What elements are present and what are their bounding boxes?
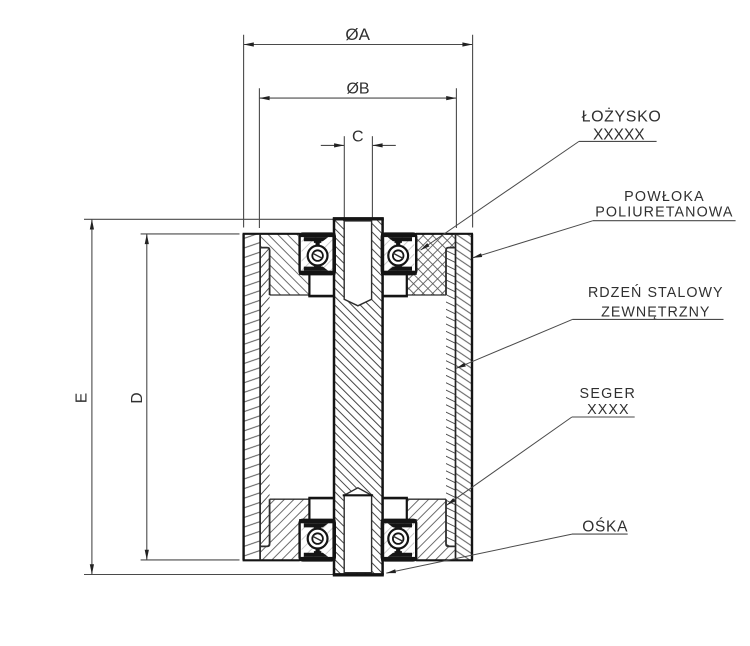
- svg-text:POLIURETANOWA: POLIURETANOWA: [595, 205, 733, 221]
- svg-text:XXXX: XXXX: [587, 402, 630, 418]
- svg-text:ØA: ØA: [345, 25, 370, 44]
- svg-text:SEGER: SEGER: [580, 386, 637, 402]
- svg-text:ØB: ØB: [346, 81, 369, 98]
- svg-text:ŁOŻYSKO: ŁOŻYSKO: [582, 106, 662, 125]
- svg-text:XXXXX: XXXXX: [593, 126, 645, 143]
- svg-text:D: D: [129, 392, 146, 403]
- svg-text:C: C: [352, 129, 364, 146]
- svg-text:ZEWNĘTRZNY: ZEWNĘTRZNY: [601, 305, 710, 321]
- svg-text:OŚKA: OŚKA: [582, 517, 628, 535]
- svg-text:E: E: [74, 393, 91, 403]
- svg-text:RDZEŃ STALOWY: RDZEŃ STALOWY: [588, 284, 724, 301]
- svg-text:POWŁOKA: POWŁOKA: [624, 189, 705, 205]
